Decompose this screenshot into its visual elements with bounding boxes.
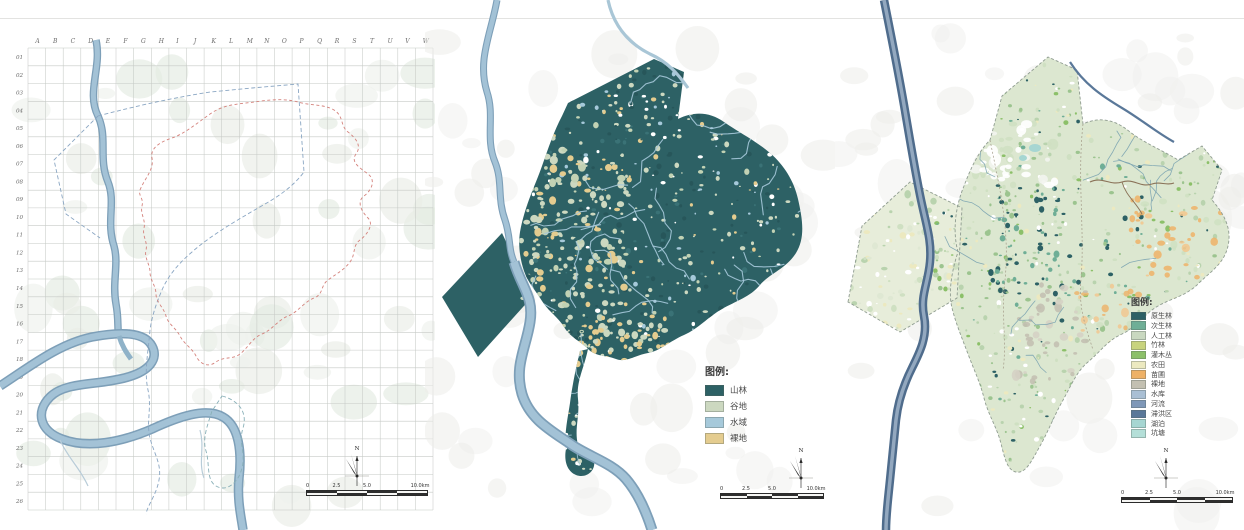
legend-swatch	[1131, 321, 1146, 330]
legend-label: 河流	[1151, 399, 1165, 409]
legend-item: 谷地	[705, 398, 747, 414]
legend-item: 竹林	[1131, 340, 1172, 350]
svg-text:20: 20	[15, 393, 24, 399]
legend-label: 湖泊	[1151, 419, 1165, 429]
svg-text:04: 04	[16, 108, 24, 114]
svg-text:O: O	[282, 38, 287, 45]
legend-swatch	[1131, 400, 1146, 409]
scale-tick-label: 2.5	[742, 486, 750, 492]
legend-item: 山林	[705, 382, 747, 398]
legend-item: 滞洪区	[1131, 409, 1172, 419]
panel-landform-map: 图例: 山林 谷地 水域	[425, 0, 835, 530]
legend-swatch	[705, 385, 724, 396]
compass-rose-icon	[1153, 454, 1179, 492]
legend-item: 裸地	[705, 430, 747, 446]
legend-label: 裸地	[1151, 379, 1165, 389]
landform-map-svg	[425, 0, 835, 530]
legend-title: 图例:	[705, 363, 747, 378]
legend-label: 人工林	[1151, 331, 1172, 341]
legend-item: 湖泊	[1131, 419, 1172, 429]
legend-item: 人工林	[1131, 331, 1172, 341]
scale-tick-label: 10.0km	[411, 483, 430, 489]
svg-text:17: 17	[16, 339, 24, 345]
svg-text:02: 02	[16, 73, 24, 79]
svg-text:03: 03	[16, 91, 24, 97]
legend-swatch	[1131, 390, 1146, 399]
svg-text:V: V	[405, 38, 410, 45]
svg-text:F: F	[122, 38, 128, 45]
svg-text:J: J	[192, 38, 197, 45]
legend-item: 农田	[1131, 360, 1172, 370]
svg-text:16: 16	[16, 322, 24, 328]
svg-text:23: 23	[15, 446, 24, 452]
svg-text:21: 21	[15, 410, 23, 416]
svg-text:24: 24	[15, 464, 24, 470]
landform-legend: 图例: 山林 谷地 水域	[705, 363, 747, 446]
svg-text:13: 13	[16, 268, 24, 274]
svg-text:05: 05	[16, 126, 24, 132]
legend-item: 苗圃	[1131, 370, 1172, 380]
scale-tick-label: 2.5	[333, 483, 341, 489]
panel-landcover-map: 图例: 原生林 次生林 人工林	[835, 0, 1244, 530]
scale-bar: 02.55.010.0km	[1121, 490, 1233, 503]
landcover-map-svg	[835, 0, 1244, 530]
scale-bar: 02.55.010.0km	[306, 483, 428, 496]
svg-text:D: D	[87, 38, 93, 45]
svg-text:U: U	[388, 38, 394, 45]
svg-text:12: 12	[16, 251, 24, 257]
svg-text:07: 07	[16, 162, 24, 168]
scale-rule	[1121, 497, 1233, 503]
legend-swatch	[1131, 380, 1146, 389]
legend-item: 水库	[1131, 389, 1172, 399]
legend-swatch	[1131, 410, 1146, 419]
svg-text:14: 14	[16, 286, 24, 292]
legend-swatch	[1131, 429, 1146, 438]
landcover-legend: 图例: 原生林 次生林 人工林	[1131, 295, 1172, 438]
three-panel-map-figure: ABCDEFGHIJKLMNOPQRSTUVW 0102030405060708…	[0, 0, 1244, 530]
scale-tick-label: 5.0	[363, 483, 371, 489]
svg-text:B: B	[52, 38, 58, 45]
legend-swatch	[705, 401, 724, 412]
legend-swatch	[705, 433, 724, 444]
legend-item: 灌木丛	[1131, 350, 1172, 360]
scale-tick-labels: 02.55.010.0km	[720, 486, 824, 493]
svg-text:M: M	[246, 38, 254, 45]
panel-grid-map: ABCDEFGHIJKLMNOPQRSTUVW 0102030405060708…	[0, 0, 435, 530]
scale-tick-labels: 02.55.010.0km	[306, 483, 428, 490]
scale-tick-label: 0	[720, 486, 723, 492]
legend-label: 山林	[730, 384, 747, 396]
svg-text:H: H	[158, 38, 165, 45]
legend-item: 坑塘	[1131, 429, 1172, 439]
legend-swatch	[1131, 351, 1146, 360]
svg-text:26: 26	[15, 499, 24, 505]
scale-tick-label: 2.5	[1145, 490, 1153, 496]
legend-item: 水域	[705, 414, 747, 430]
north-compass: N	[1153, 448, 1179, 494]
svg-text:G: G	[141, 38, 146, 45]
svg-text:Q: Q	[317, 38, 322, 45]
legend-label: 农田	[1151, 360, 1165, 370]
scale-rule	[720, 493, 824, 499]
svg-text:L: L	[228, 38, 233, 45]
svg-text:22: 22	[15, 428, 24, 434]
legend-swatch	[705, 417, 724, 428]
legend-title: 图例:	[1131, 295, 1172, 308]
svg-text:18: 18	[16, 357, 24, 363]
legend-swatch	[1131, 312, 1146, 321]
legend-items: 原生林 次生林 人工林 竹林	[1131, 311, 1172, 438]
legend-label: 灌木丛	[1151, 350, 1172, 360]
legend-swatch	[1131, 419, 1146, 428]
scale-tick-label: 0	[1121, 490, 1124, 496]
svg-text:T: T	[370, 38, 375, 45]
svg-text:K: K	[211, 38, 217, 45]
svg-text:11: 11	[16, 233, 23, 239]
svg-text:10: 10	[16, 215, 24, 221]
legend-swatch	[1131, 370, 1146, 379]
scale-tick-label: 5.0	[1173, 490, 1181, 496]
legend-label: 滞洪区	[1151, 409, 1172, 419]
svg-text:09: 09	[16, 197, 24, 203]
legend-label: 竹林	[1151, 340, 1165, 350]
legend-item: 裸地	[1131, 380, 1172, 390]
scale-tick-label: 0	[306, 483, 309, 489]
terrain-tint-layer	[12, 54, 435, 527]
svg-text:I: I	[175, 38, 179, 45]
svg-text:N: N	[263, 38, 270, 45]
legend-swatch	[1131, 331, 1146, 340]
svg-text:06: 06	[16, 144, 24, 150]
scale-bar: 02.55.010.0km	[720, 486, 824, 499]
svg-text:R: R	[334, 38, 340, 45]
scale-tick-labels: 02.55.010.0km	[1121, 490, 1233, 497]
svg-text:E: E	[105, 38, 111, 45]
svg-text:P: P	[299, 38, 305, 45]
svg-text:A: A	[34, 38, 40, 45]
legend-item: 原生林	[1131, 311, 1172, 321]
svg-text:25: 25	[15, 482, 24, 488]
svg-text:01: 01	[16, 55, 23, 61]
scale-tick-label: 10.0km	[1216, 490, 1235, 496]
svg-text:S: S	[352, 38, 356, 45]
legend-label: 原生林	[1151, 311, 1172, 321]
legend-item: 次生林	[1131, 321, 1172, 331]
legend-swatch	[1131, 341, 1146, 350]
legend-label: 水库	[1151, 389, 1165, 399]
scale-tick-label: 10.0km	[807, 486, 826, 492]
legend-item: 河流	[1131, 399, 1172, 409]
grid-row-labels: 0102030405060708091011121314151617181920…	[15, 55, 24, 505]
legend-label: 裸地	[730, 432, 747, 444]
legend-label: 次生林	[1151, 321, 1172, 331]
legend-label: 水域	[730, 416, 747, 428]
scale-tick-label: 5.0	[768, 486, 776, 492]
legend-swatch	[1131, 361, 1146, 370]
scale-rule	[306, 490, 428, 496]
legend-label: 谷地	[730, 400, 747, 412]
legend-label: 苗圃	[1151, 370, 1165, 380]
legend-label: 坑塘	[1151, 428, 1165, 438]
svg-text:08: 08	[16, 179, 24, 185]
svg-text:C: C	[71, 38, 76, 45]
svg-text:15: 15	[16, 304, 24, 310]
legend-items: 山林 谷地 水域 裸地	[705, 382, 747, 446]
